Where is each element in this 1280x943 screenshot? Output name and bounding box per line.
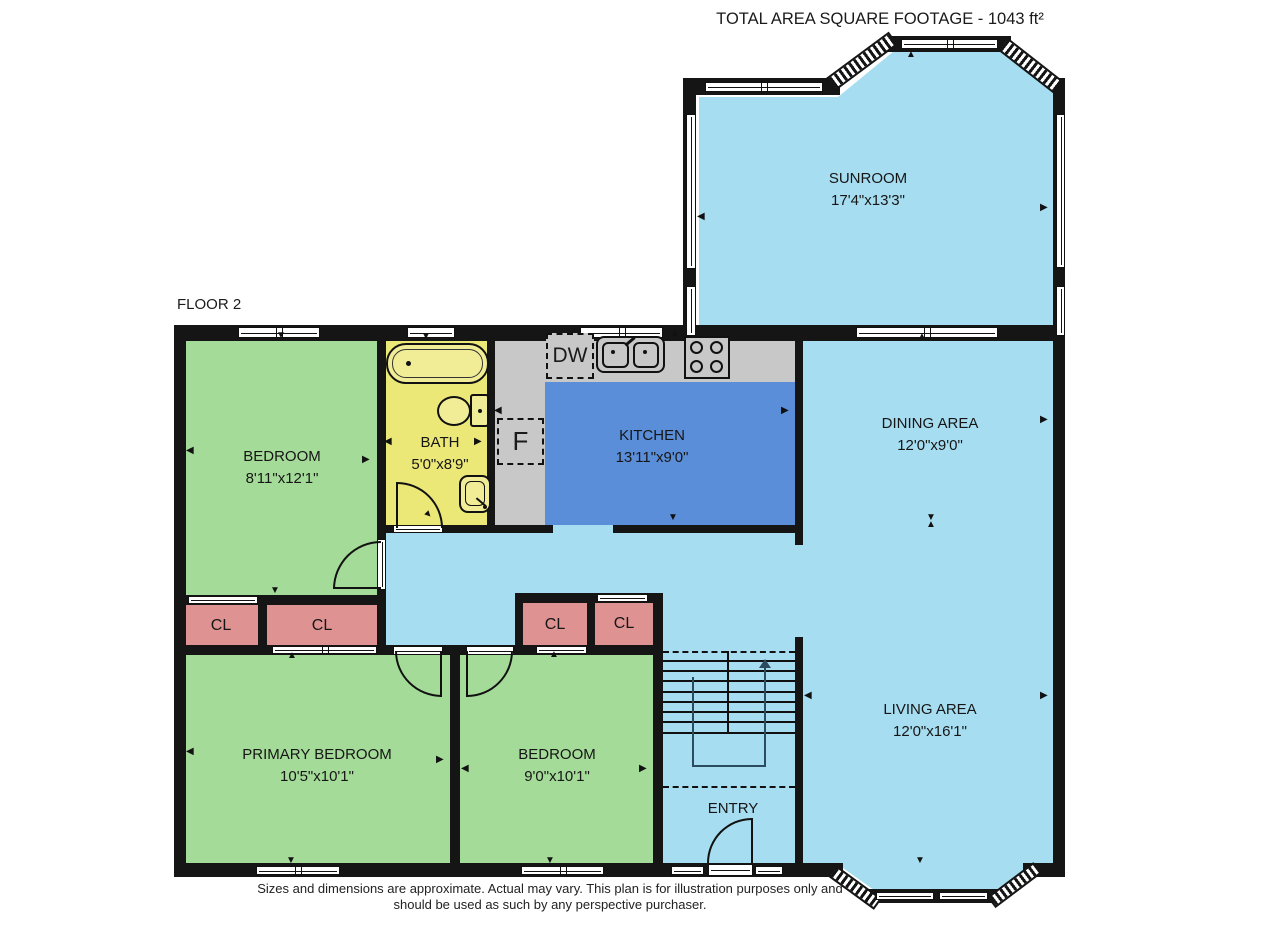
wall-bedrooms-divider [450,655,460,877]
stair-tread [663,670,795,672]
room-label-bedroom2: BEDROOM 9'0"x10'1" [518,744,596,788]
room-name: PRIMARY BEDROOM [242,744,391,766]
marker: ▶ [1040,415,1048,425]
room-name: KITCHEN [616,425,689,447]
stair-tread [663,691,795,693]
page-title: TOTAL AREA SQUARE FOOTAGE - 1043 ft² [620,10,1140,29]
stair-tread [663,721,795,723]
floor-label: FLOOR 2 [177,296,241,313]
window-sunroom-right-1 [1056,114,1065,268]
door-leaf-entry [751,818,753,863]
room-dims: 5'0"x8'9" [411,454,468,476]
furnace-label: F [513,426,529,457]
wall-closet3-left [515,593,523,655]
marker: ▲ [549,650,559,660]
door-leaf-primary [440,651,442,697]
room-dims: 12'0"x16'1" [883,721,976,743]
marker: ▼ [668,513,678,523]
stair-center-line [727,651,729,734]
room-label-primary: PRIMARY BEDROOM 10'5"x10'1" [242,744,391,788]
window-bay-right [939,892,988,900]
wall-bedroom1-right [377,341,386,655]
room-name: BEDROOM [243,446,321,468]
closet-label-2: CL [312,614,332,637]
kitchen-sink [596,336,665,373]
wall-closet34-divider [587,593,595,655]
marker: ▼ [276,331,286,341]
room-label-bedroom1: BEDROOM 8'11"x12'1" [243,446,321,490]
door-leaf-bedroom1 [333,587,381,589]
window-sunroom-dining [856,327,998,338]
stove [684,336,730,379]
room-dims: 17'4"x13'3" [829,190,907,212]
wall-closet12-divider [258,595,267,655]
footer-disclaimer: Sizes and dimensions are approximate. Ac… [170,881,930,914]
marker: ▶ [1040,691,1048,701]
stair-tread [663,732,795,734]
stair-walkline-left [692,677,694,767]
marker: ▼ [915,856,925,866]
window-sunroom-left-2 [686,286,696,336]
marker: ▶ [436,755,444,765]
door-leaf-bedroom2 [466,651,468,697]
marker: ◀ [461,764,469,774]
entry-sidelight-right [755,866,783,875]
marker: ▲ [670,329,680,339]
marker: ▶ [362,455,370,465]
marker: ▼ [421,332,431,342]
marker: ▼ [286,856,296,866]
room-name: DINING AREA [882,413,979,435]
room-name: BATH [411,432,468,454]
room-name: BEDROOM [518,744,596,766]
marker: ▲ [926,520,936,530]
stair-up-arrow [759,659,771,668]
room-name: SUNROOM [829,168,907,190]
dishwasher-box: DW [546,333,594,379]
room-label-entry: ENTRY [708,798,759,820]
marker: ▲ [917,332,927,342]
stair-walkline-right [764,668,766,767]
room-name: ENTRY [708,798,759,820]
stair-tread [663,680,795,682]
closet4-door [597,594,648,602]
marker: ▶ [474,437,482,447]
marker: ◀ [186,747,194,757]
marker: ◀ [804,691,812,701]
entry-door-sill [708,864,753,876]
closet-label-4: CL [614,612,634,635]
closet3-door [536,646,587,654]
bathtub-drain [406,361,411,366]
closet-label-1: CL [211,614,231,637]
marker: ◀ [697,212,705,222]
closet1-door [188,596,258,604]
marker: ◀ [186,446,194,456]
room-dims: 13'11"x9'0" [616,447,689,469]
closet-label-3: CL [545,613,565,636]
room-dims: 12'0"x9'0" [882,435,979,457]
window-sunroom-left-1 [686,114,696,269]
window-sunroom-top [901,39,998,49]
window-sunroom-right-2 [1056,286,1065,336]
wall-right [1053,325,1065,877]
stair-tread [663,660,795,662]
stair-tread [663,701,795,703]
room-dims: 10'5"x10'1" [242,766,391,788]
dishwasher-label: DW [553,344,588,368]
marker: ▼ [545,856,555,866]
floor-plan: TOTAL AREA SQUARE FOOTAGE - 1043 ft² FLO… [0,0,1280,943]
marker: ▶ [1040,203,1048,213]
wall-kitchen-bottom [613,525,803,533]
marker: ▲ [287,651,297,661]
entry-sidelight-left [671,866,704,875]
room-dims: 8'11"x12'1" [243,468,321,490]
toilet-bowl [437,396,471,426]
room-label-living: LIVING AREA 12'0"x16'1" [883,699,976,743]
window-primary-bedroom [256,866,340,875]
bathtub [386,343,489,384]
room-name: LIVING AREA [883,699,976,721]
stairs-dashed-bottom [663,786,795,788]
bath-sink [459,475,491,513]
stair-walkline-bottom [692,765,766,767]
room-dims: 9'0"x10'1" [518,766,596,788]
marker: ▶ [639,764,647,774]
room-label-dining: DINING AREA 12'0"x9'0" [882,413,979,457]
door-leaf-bath [396,482,398,528]
marker: ◀ [494,406,502,416]
room-label-kitchen: KITCHEN 13'11"x9'0" [616,425,689,469]
furnace-box: F [497,418,544,465]
wall-stairs-living [795,637,803,877]
wall-kitchen-dining [795,325,803,545]
footer-line-1: Sizes and dimensions are approximate. Ac… [170,881,930,897]
footer-line-2: should be used as such by any perspectiv… [170,897,930,913]
window-sunroom-topleft [705,82,823,92]
room-label-bath: BATH 5'0"x8'9" [411,432,468,476]
window-bath [407,327,455,338]
wall-stairs-left [653,593,663,877]
window-bedroom2 [521,866,604,875]
marker: ▲ [906,50,916,60]
marker: ▼ [270,586,280,596]
room-label-sunroom: SUNROOM 17'4"x13'3" [829,168,907,212]
stair-tread [663,711,795,713]
stairs-dashed-top [663,651,795,653]
toilet-tank [470,394,489,427]
marker: ◀ [384,437,392,447]
marker: ▶ [781,406,789,416]
